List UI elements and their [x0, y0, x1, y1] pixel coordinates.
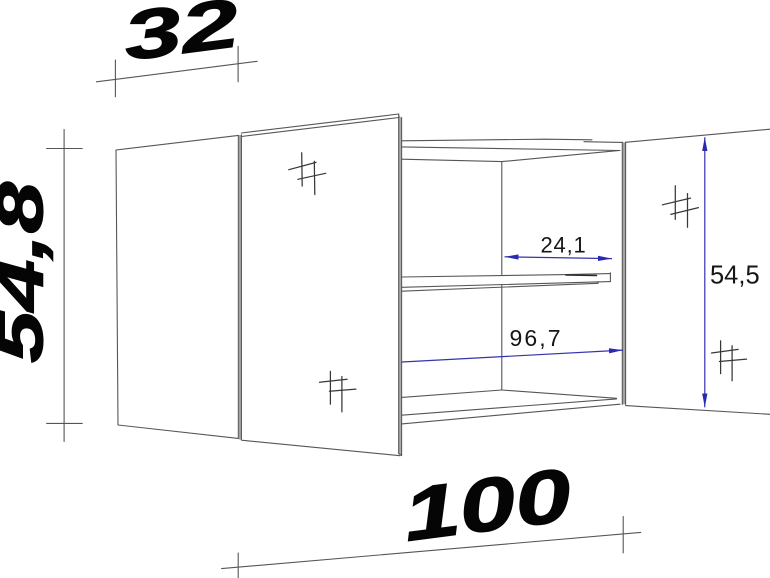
svg-text:96,7: 96,7	[510, 325, 563, 351]
svg-text:100: 100	[398, 453, 576, 557]
svg-text:54,8: 54,8	[0, 182, 57, 363]
svg-text:24,1: 24,1	[541, 233, 587, 258]
svg-text:32: 32	[119, 0, 243, 75]
svg-text:54,5: 54,5	[710, 262, 760, 290]
